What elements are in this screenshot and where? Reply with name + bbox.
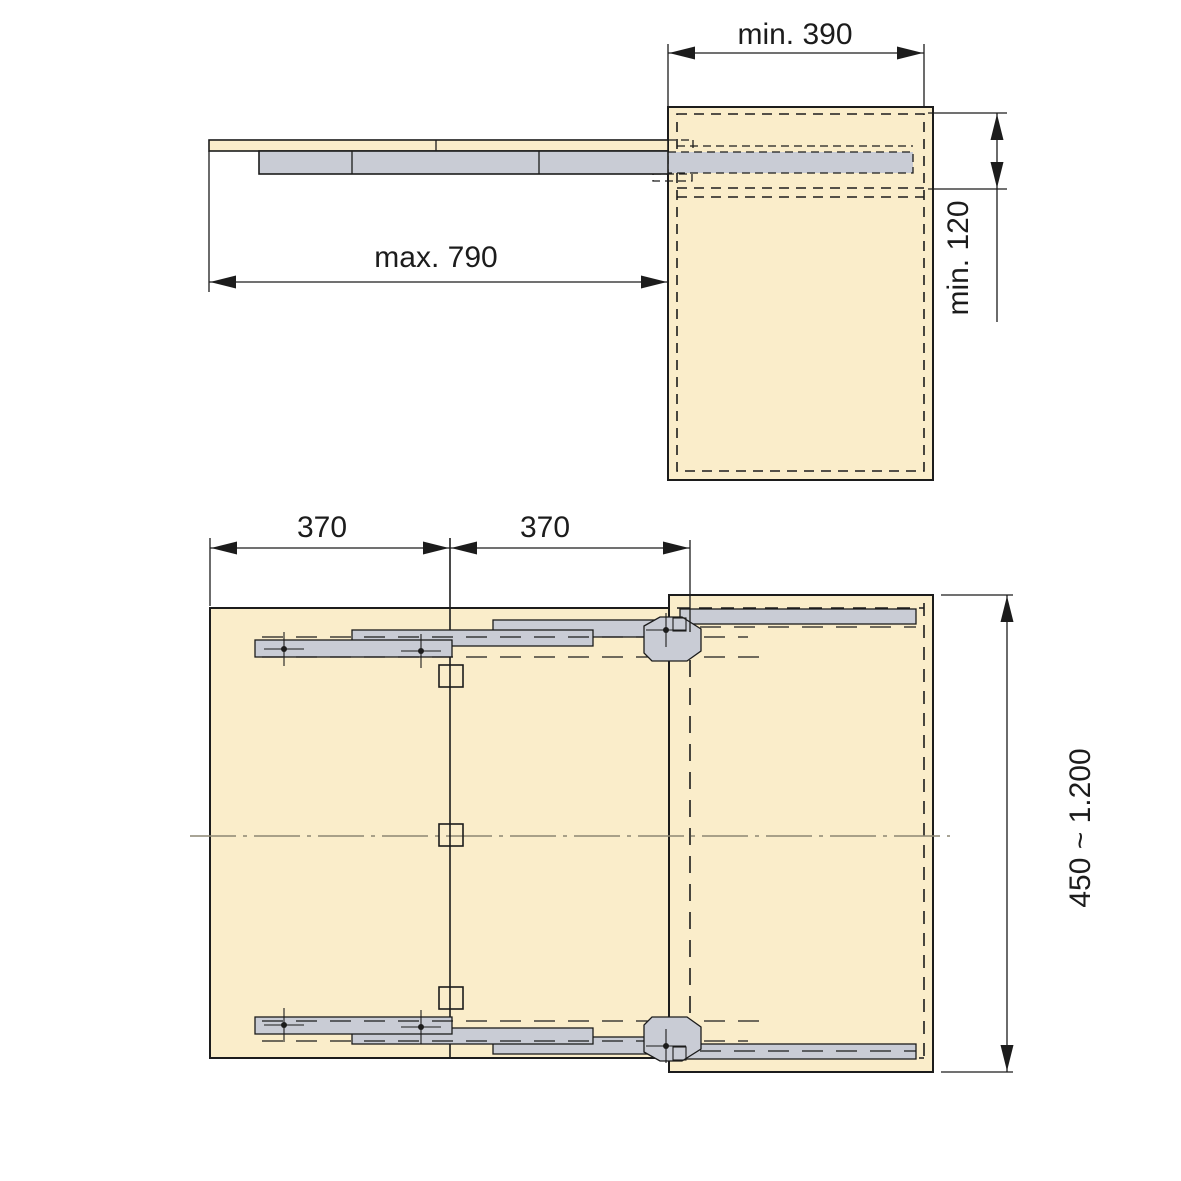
dim-pullout-extension-label: max. 790 xyxy=(374,241,497,274)
dim-leaf-left: 370 xyxy=(210,511,450,606)
dim-arrow-left-icon xyxy=(451,542,477,555)
dim-clearance-height-label: min. 120 xyxy=(942,200,975,315)
side-elevation-view: min. 390 max. 790 xyxy=(209,18,1007,480)
cabinet-plan-panel xyxy=(669,595,933,1072)
slide-rail-hidden xyxy=(668,152,913,173)
dim-arrow-left-icon xyxy=(210,276,236,289)
dim-arrow-right-icon xyxy=(897,47,923,60)
technical-drawing: min. 390 max. 790 xyxy=(0,0,1181,1181)
dim-arrow-up-icon xyxy=(1001,596,1014,622)
dim-arrow-left-icon xyxy=(211,542,237,555)
plan-view: 370 370 450 ~ 1.200 xyxy=(190,511,1097,1072)
dim-arrow-right-icon xyxy=(641,276,667,289)
dim-cabinet-width-label: min. 390 xyxy=(737,18,852,51)
dim-arrow-right-icon xyxy=(423,542,449,555)
dim-leaf-left-label: 370 xyxy=(297,511,347,544)
dim-arrow-left-icon xyxy=(669,47,695,60)
fixed-rail-top xyxy=(680,609,916,624)
tabletop-side xyxy=(209,140,668,151)
dim-leaf-right-label: 370 xyxy=(520,511,570,544)
dim-clearance-height: min. 120 xyxy=(928,113,1007,322)
dim-arrow-down-icon xyxy=(1001,1045,1014,1071)
dim-arrow-down-icon xyxy=(991,162,1004,188)
dim-arrow-right-icon xyxy=(663,542,689,555)
dim-cabinet-width: min. 390 xyxy=(668,18,924,114)
drawing-canvas: min. 390 max. 790 xyxy=(0,0,1181,1181)
slide-rail-side xyxy=(259,151,668,174)
dim-cabinet-depth: 450 ~ 1.200 xyxy=(941,595,1097,1072)
dim-cabinet-depth-label: 450 ~ 1.200 xyxy=(1064,748,1097,907)
dim-arrow-up-icon xyxy=(991,114,1004,140)
